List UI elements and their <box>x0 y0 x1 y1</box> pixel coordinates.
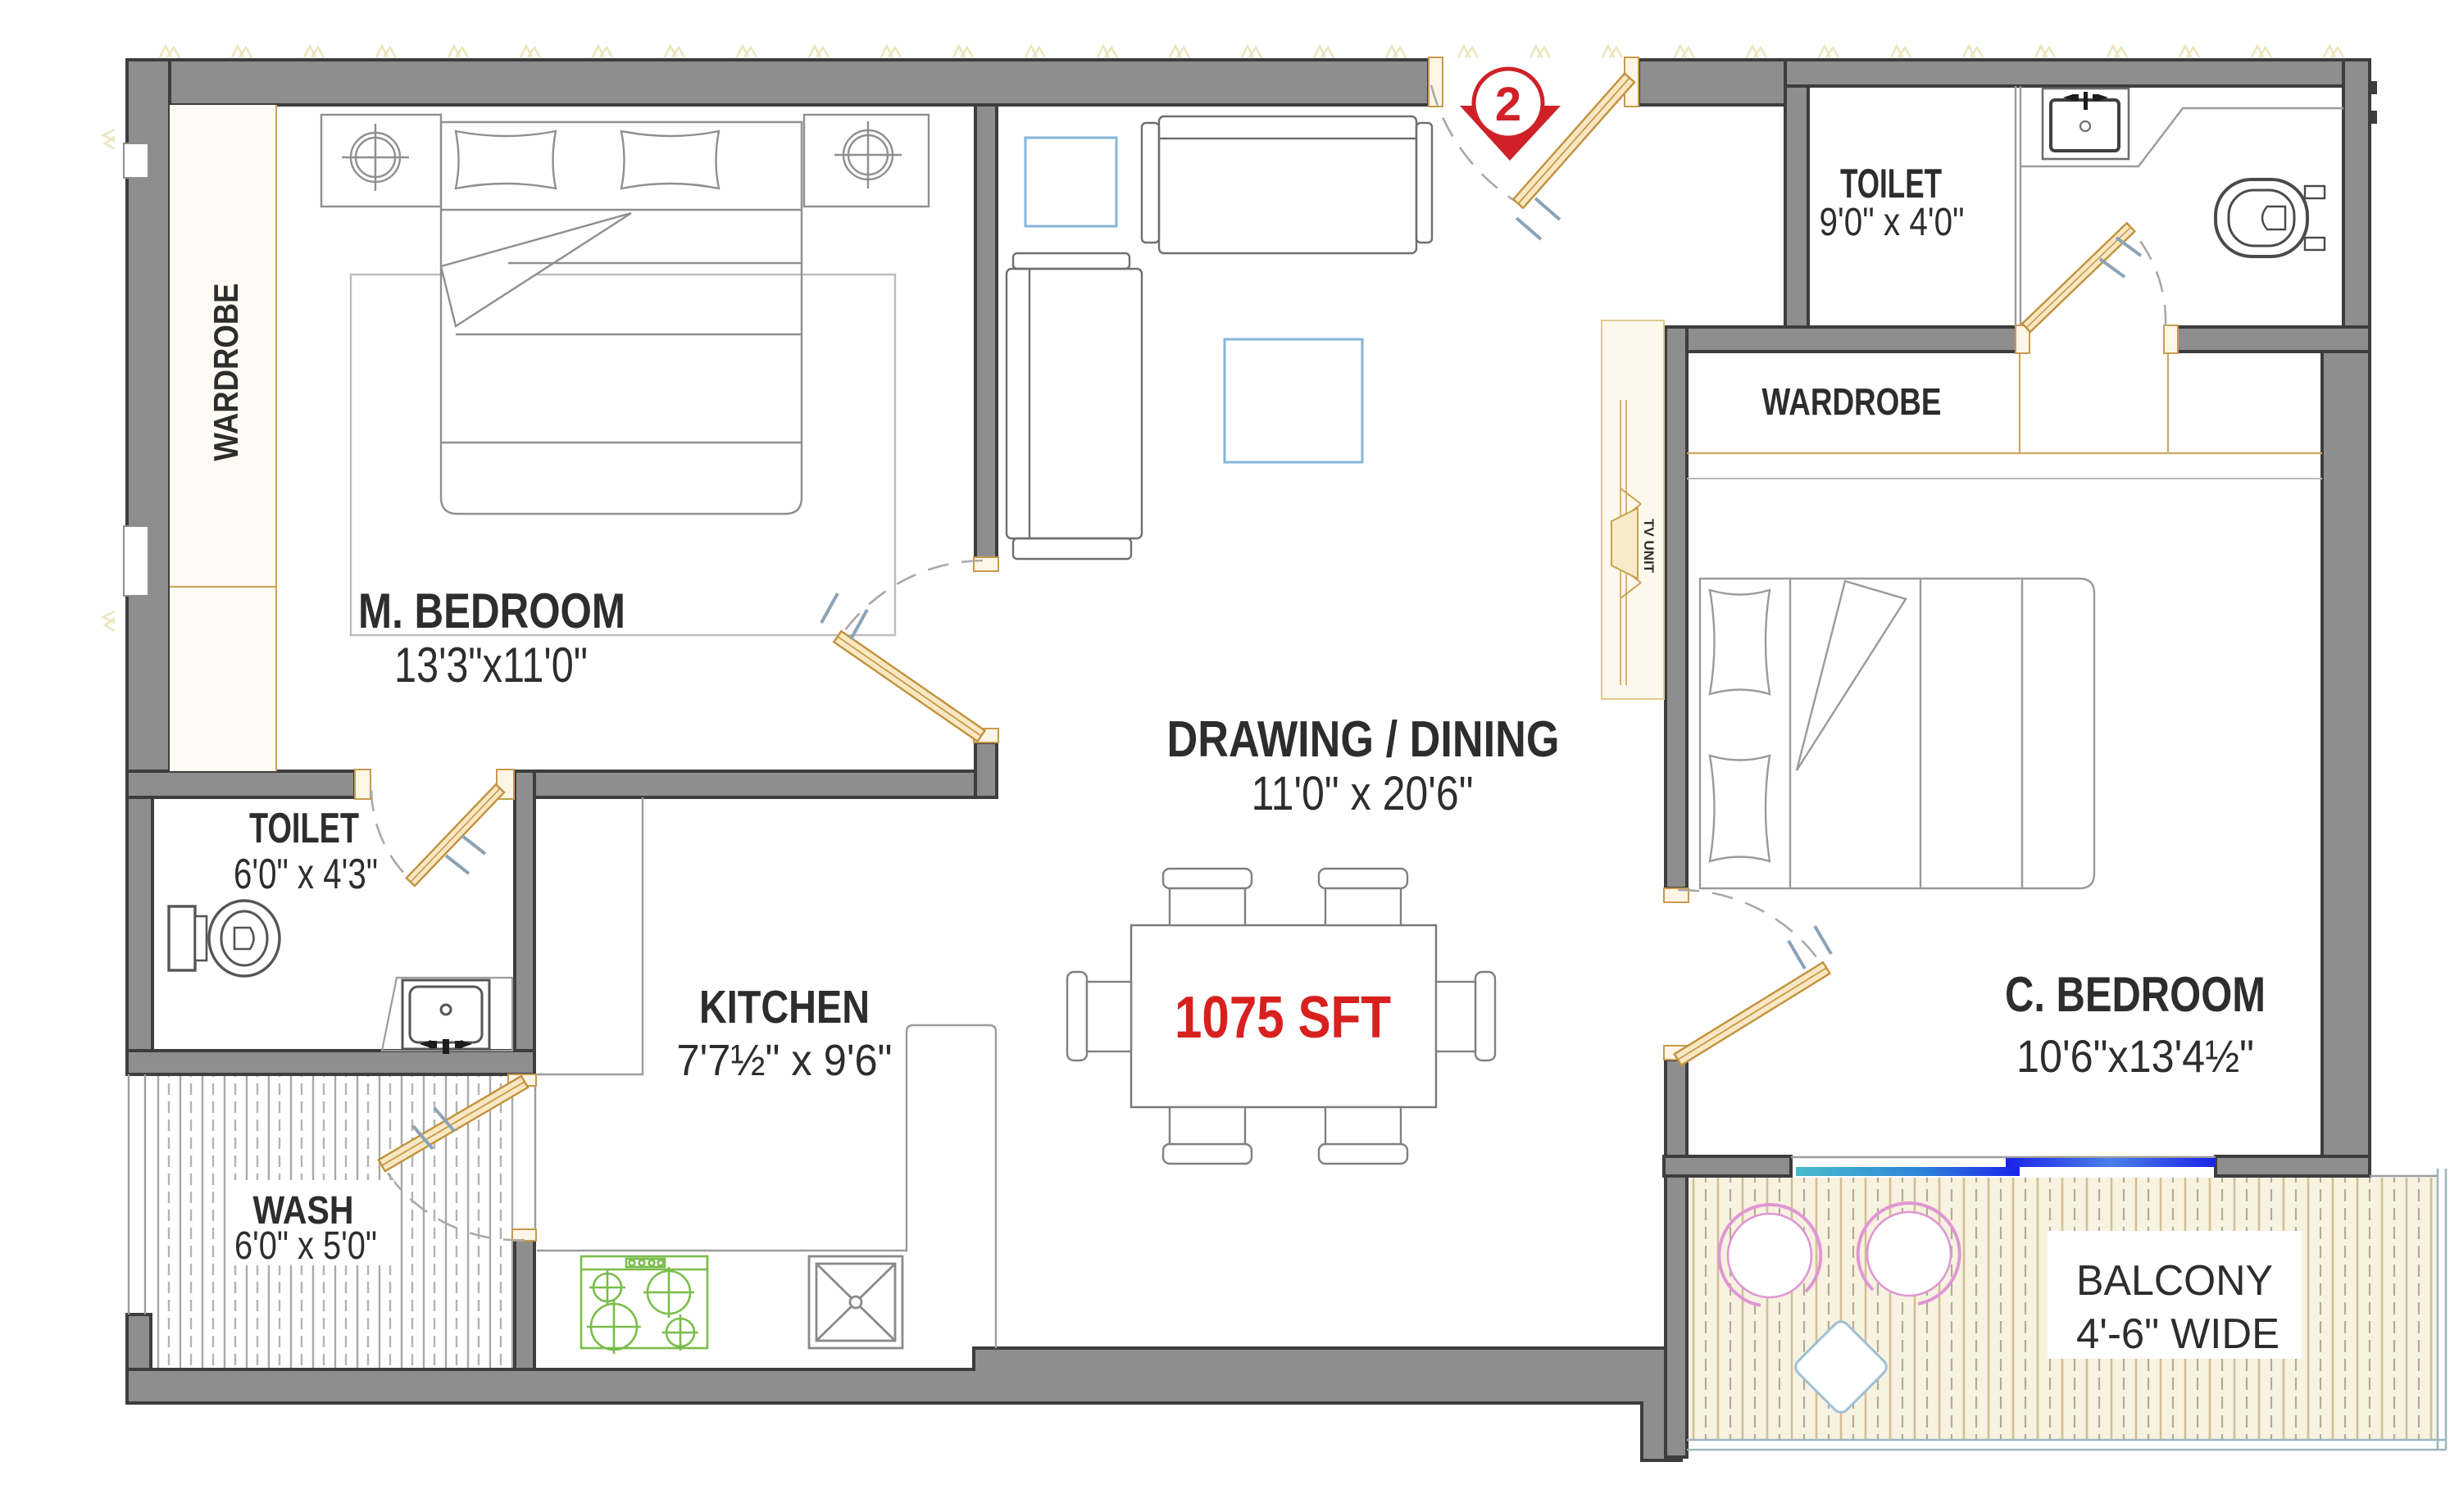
svg-text:9'0" x 4'0": 9'0" x 4'0" <box>1820 201 1965 244</box>
svg-text:6'0" x 5'0": 6'0" x 5'0" <box>234 1224 377 1268</box>
svg-text:6'0" x 4'3": 6'0" x 4'3" <box>234 851 378 898</box>
svg-text:DRAWING / DINING: DRAWING / DINING <box>1167 711 1560 768</box>
svg-text:1075 SFT: 1075 SFT <box>1175 985 1391 1051</box>
svg-text:7'7½" x 9'6": 7'7½" x 9'6" <box>677 1036 893 1085</box>
svg-text:KITCHEN: KITCHEN <box>699 981 870 1033</box>
svg-text:11'0" x 20'6": 11'0" x 20'6" <box>1252 767 1474 820</box>
svg-text:4'-6" WIDE: 4'-6" WIDE <box>2076 1310 2279 1358</box>
svg-text:2: 2 <box>1495 78 1521 131</box>
svg-text:BALCONY: BALCONY <box>2076 1257 2273 1305</box>
svg-text:WARDROBE: WARDROBE <box>207 284 245 461</box>
svg-text:10'6"x13'4½": 10'6"x13'4½" <box>2016 1030 2254 1082</box>
svg-text:TOILET: TOILET <box>1840 161 1942 207</box>
svg-text:C. BEDROOM: C. BEDROOM <box>2005 967 2266 1022</box>
svg-text:TOILET: TOILET <box>249 805 359 852</box>
svg-text:TV UNIT: TV UNIT <box>1641 519 1657 574</box>
svg-text:M. BEDROOM: M. BEDROOM <box>358 583 625 638</box>
svg-text:13'3"x11'0": 13'3"x11'0" <box>394 638 588 692</box>
svg-text:WARDROBE: WARDROBE <box>1762 380 1942 423</box>
